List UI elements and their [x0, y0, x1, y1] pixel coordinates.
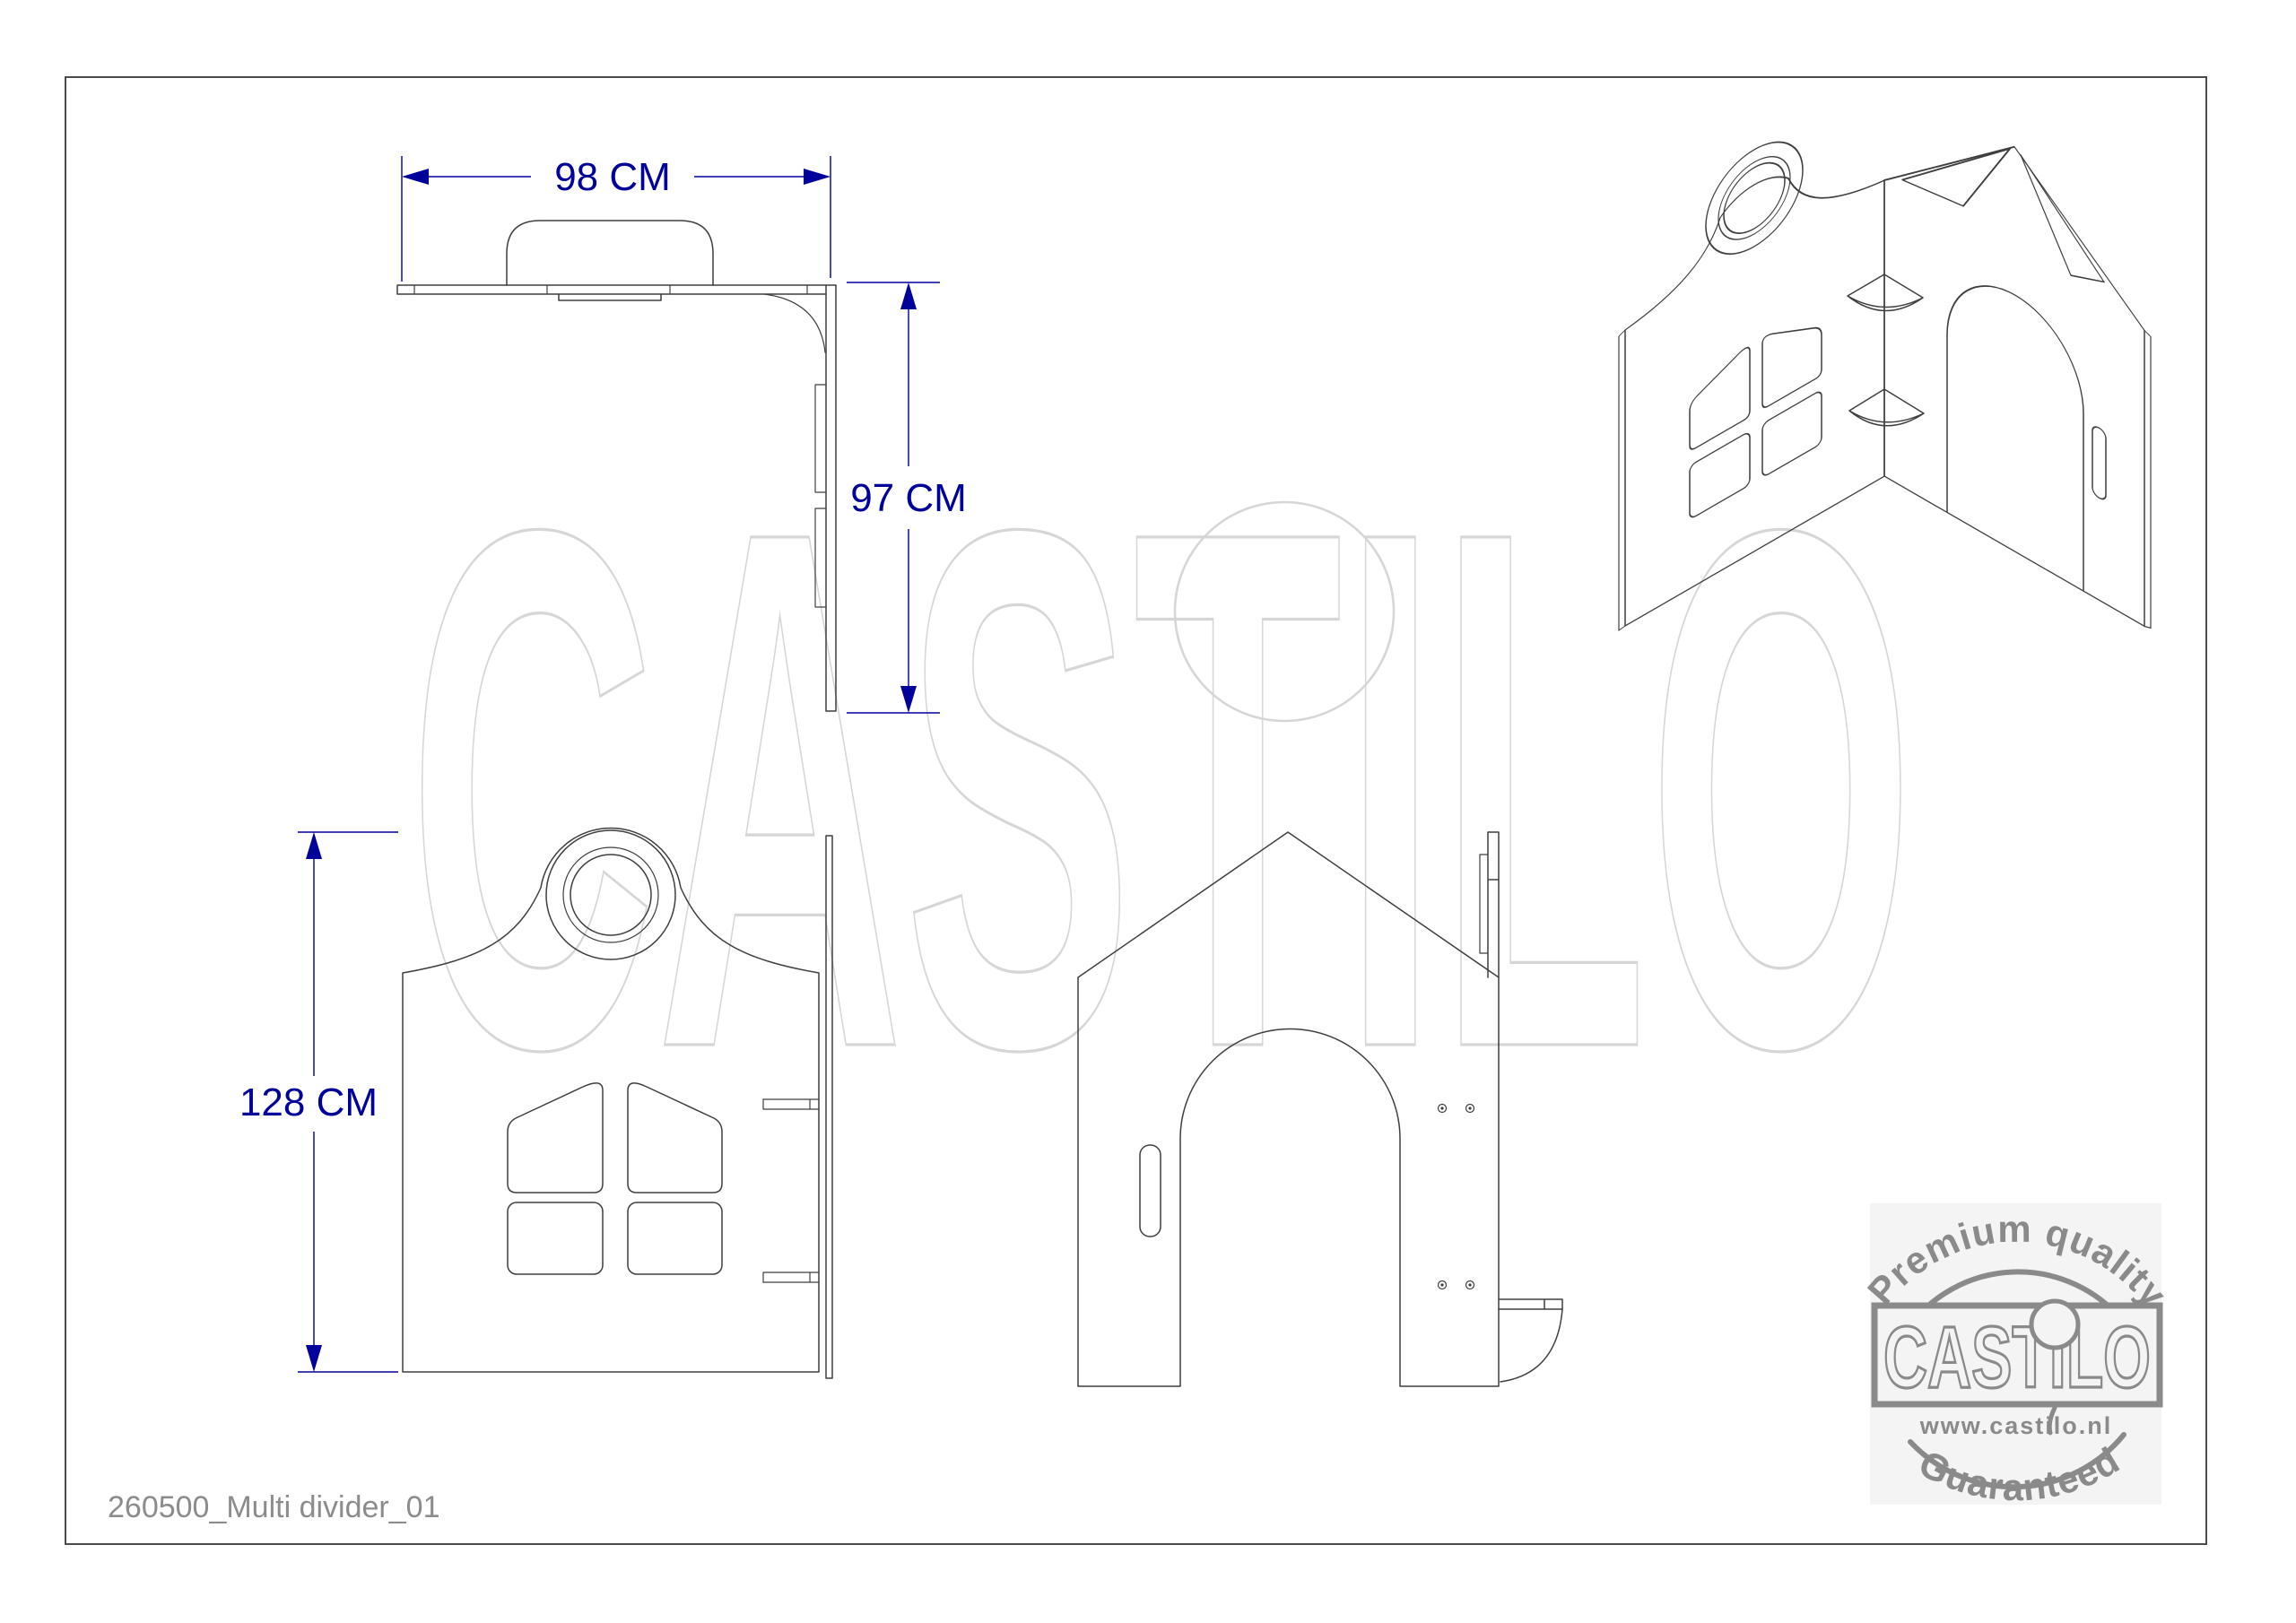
stamp-logo: Premium quality CASTILO www.castilo.nl G… — [1859, 1203, 2176, 1508]
dim-arrow-right — [804, 169, 831, 185]
drawing-title: 260500_Multi divider_01 — [108, 1490, 439, 1524]
dimension-width-98: 98 CM — [402, 155, 831, 282]
stamp-ball-icon — [2031, 1301, 2078, 1348]
roof-panel-left — [1902, 87, 2010, 242]
watermark-text: CASTILO — [408, 377, 1915, 1202]
stamp-brand: CASTILO — [1883, 1308, 2151, 1406]
stamp-url: www.castilo.nl — [1919, 1412, 2113, 1439]
dimension-height-128: 128 CM — [239, 832, 398, 1372]
dim-arrow-left — [402, 169, 429, 185]
dim-128-label: 128 CM — [239, 1081, 378, 1124]
dim-98-label: 98 CM — [554, 155, 671, 199]
dim-arrow-up — [900, 282, 917, 309]
watermark: CASTILO — [408, 377, 1915, 1202]
corner-shelf-upper — [1848, 274, 1923, 311]
dim-97-label: 97 CM — [850, 476, 967, 520]
dim-arrow-down — [306, 1345, 322, 1372]
window-pane-lower-right — [628, 1202, 722, 1274]
corner-shelf-front — [1499, 1299, 1562, 1382]
dim-arrow-up — [306, 832, 322, 859]
window-pane-lower-left — [508, 1202, 603, 1274]
drawing-sheet: CASTILO 98 CM 97 CM — [0, 0, 2296, 1623]
roof-panel-right — [2021, 155, 2104, 295]
shelf-bracket-lower — [763, 1272, 819, 1282]
